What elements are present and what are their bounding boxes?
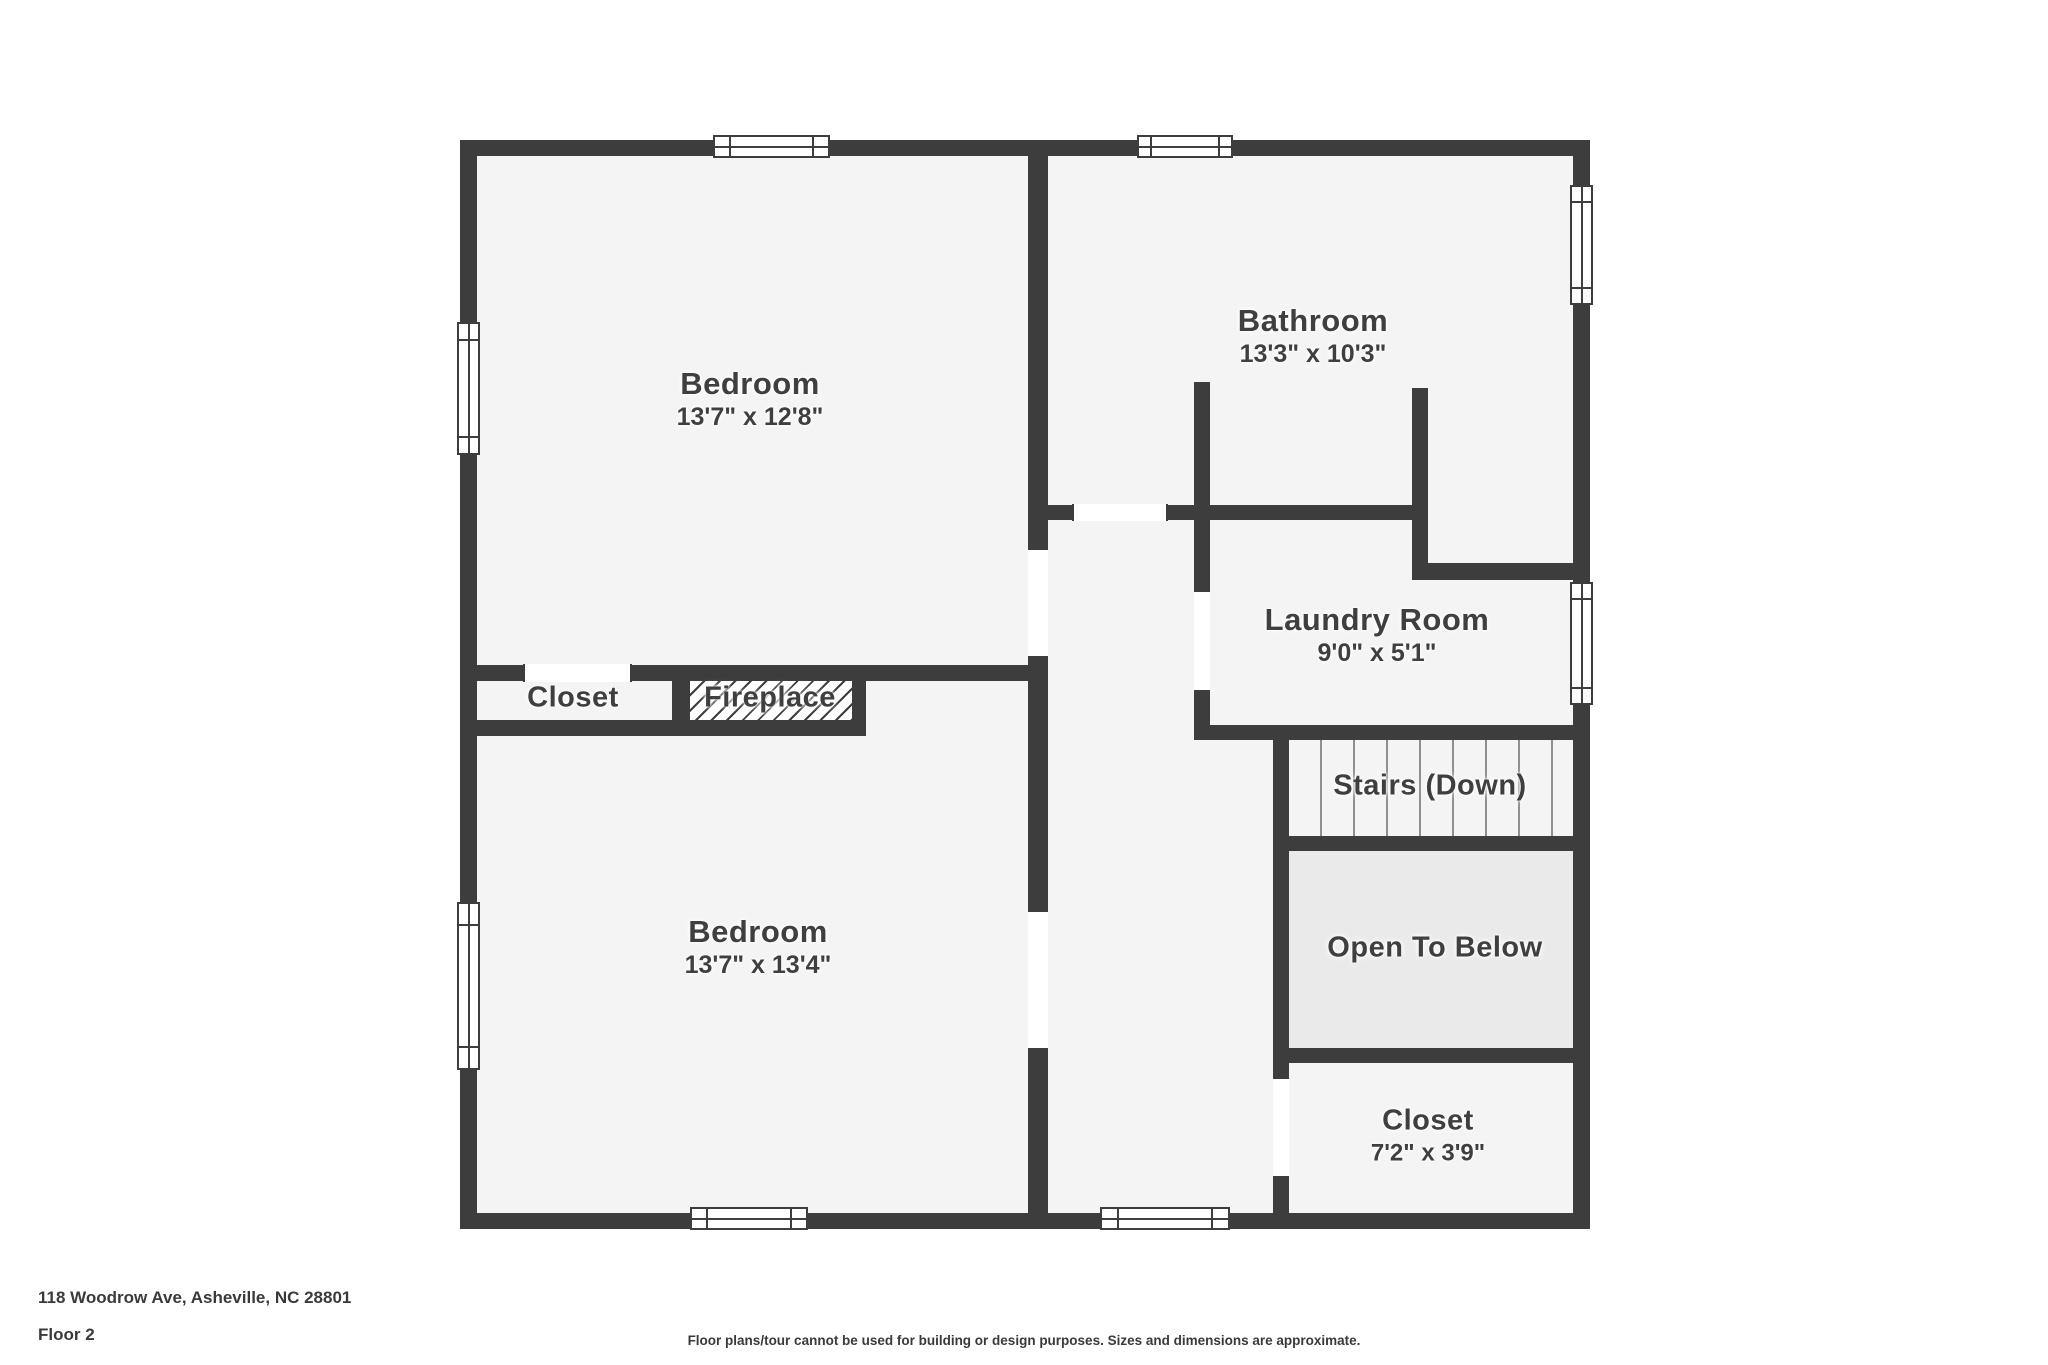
- wall-stairs-left: [1273, 740, 1289, 1077]
- label-hall-closet: Closet 7'2" x 3'9": [1371, 1104, 1485, 1169]
- wall-bathroom-bottom-left: [1048, 505, 1072, 520]
- room-dimensions: 13'3" x 10'3": [1238, 339, 1388, 370]
- wall-bathroom-nook-bottom: [1428, 563, 1573, 580]
- wall-bathroom-stub-left-upper: [1194, 382, 1210, 590]
- label-bedroom-top: Bedroom 13'7" x 12'8": [677, 365, 824, 433]
- wall-band-top-left: [477, 665, 523, 681]
- door-laundry: [1194, 590, 1210, 692]
- label-open-to-below: Open To Below: [1327, 931, 1542, 966]
- room-dimensions: 9'0" x 5'1": [1265, 638, 1490, 669]
- window-left-bedroom-bottom: [457, 902, 480, 1070]
- wall-central-upper: [1028, 156, 1048, 548]
- wall-band-top-right: [632, 665, 1028, 681]
- wall-hall-closet-left-lower: [1273, 1178, 1289, 1213]
- wall-bathroom-bottom-right: [1168, 505, 1194, 520]
- window-left-bedroom-top: [457, 322, 480, 455]
- label-bedroom-bottom: Bedroom 13'7" x 13'4": [685, 913, 832, 981]
- address-text: 118 Woodrow Ave, Asheville, NC 28801: [38, 1288, 351, 1308]
- wall-laundry-top: [1210, 505, 1412, 520]
- window-top-bathroom: [1137, 135, 1233, 158]
- disclaimer-text: Floor plans/tour cannot be used for buil…: [0, 1333, 2048, 1348]
- room-dimensions: 7'2" x 3'9": [1371, 1138, 1485, 1168]
- door-band-closet: [523, 664, 632, 682]
- wall-laundry-bottom: [1194, 725, 1573, 740]
- room-name: Fireplace: [704, 681, 836, 716]
- room-dimensions: 13'7" x 12'8": [677, 402, 824, 433]
- label-band-closet: Closet: [527, 681, 619, 716]
- door-bedroom-top: [1028, 548, 1048, 658]
- label-laundry: Laundry Room 9'0" x 5'1": [1265, 601, 1490, 669]
- door-bedroom-bottom: [1028, 910, 1048, 1050]
- room-name: Closet: [527, 681, 619, 716]
- outer-wall-top: [460, 140, 1590, 156]
- room-dimensions: 13'7" x 13'4": [685, 950, 832, 981]
- wall-fireplace-right: [852, 681, 866, 720]
- door-hall-closet: [1273, 1077, 1289, 1178]
- wall-closet-fireplace-divider: [672, 681, 690, 720]
- wall-central-lower: [1028, 1050, 1048, 1213]
- window-bottom-bedroom: [690, 1207, 808, 1230]
- label-fireplace: Fireplace: [704, 681, 836, 716]
- room-name: Laundry Room: [1265, 601, 1490, 638]
- window-right-laundry: [1570, 582, 1593, 705]
- floor-plan-page: Bedroom 13'7" x 12'8" Bathroom 13'3" x 1…: [0, 0, 2048, 1365]
- wall-stairs-bottom: [1273, 836, 1573, 851]
- room-name: Bedroom: [685, 913, 832, 950]
- room-name: Bedroom: [677, 365, 824, 402]
- door-bathroom: [1072, 504, 1168, 521]
- wall-open-below-bottom: [1273, 1048, 1573, 1063]
- wall-central-middle: [1028, 658, 1048, 910]
- room-name: Bathroom: [1238, 302, 1388, 339]
- room-name: Open To Below: [1327, 931, 1542, 966]
- window-top-bedroom: [713, 135, 830, 158]
- room-name: Stairs (Down): [1333, 769, 1526, 804]
- wall-bathroom-stub-right: [1412, 388, 1428, 580]
- wall-band-bottom: [477, 720, 866, 736]
- room-name: Closet: [1371, 1104, 1485, 1139]
- window-bottom-hall: [1100, 1207, 1230, 1230]
- label-stairs: Stairs (Down): [1333, 769, 1526, 804]
- outer-wall-bottom: [460, 1213, 1590, 1229]
- window-right-bathroom: [1570, 185, 1593, 305]
- label-bathroom: Bathroom 13'3" x 10'3": [1238, 302, 1388, 370]
